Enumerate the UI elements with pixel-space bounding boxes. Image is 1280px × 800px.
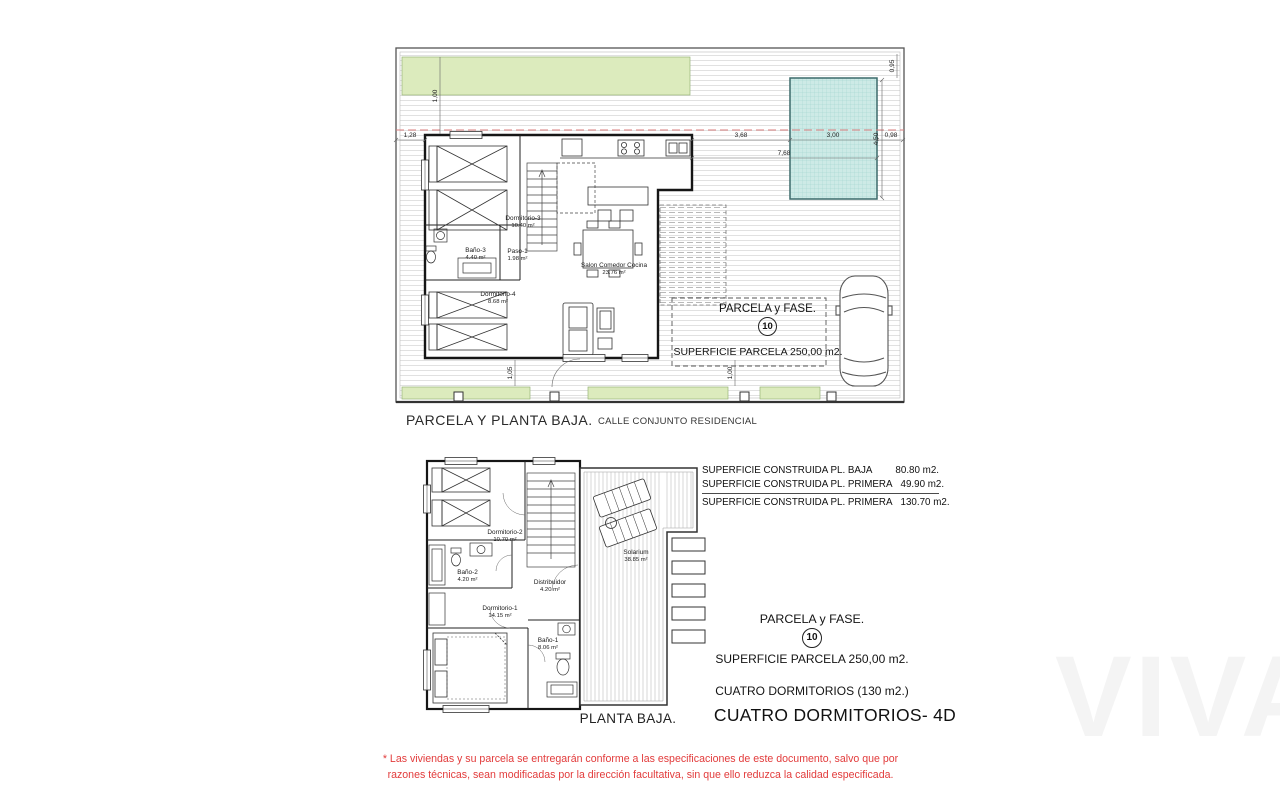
- svg-text:7,68: 7,68: [778, 150, 791, 157]
- disclaimer-text: * Las viviendas y su parcela se entregar…: [363, 751, 918, 784]
- svg-text:1,00: 1,00: [432, 89, 439, 102]
- parcel-phase-title: PARCELA y FASE.: [695, 303, 840, 315]
- svg-text:0,98: 0,98: [885, 132, 898, 139]
- svg-text:3,68: 3,68: [735, 132, 748, 139]
- parcel-area-text-top: SUPERFICIE PARCELA 250,00 m2.: [668, 343, 848, 358]
- garden-strip-bottom: [588, 387, 728, 399]
- room-label-dormitorio-4: Dormitorio-48.68 m²: [462, 291, 534, 306]
- room-label-dormitorio-3: Dormitorio-310.40 m²: [488, 215, 558, 230]
- svg-text:4,50: 4,50: [873, 132, 880, 145]
- svg-text:1,05: 1,05: [507, 366, 514, 379]
- pergola-louvers: [672, 538, 705, 643]
- parcel-number-badge: 10: [802, 628, 822, 648]
- floorplan-sheet: 1,28 3,68 3,00 0,98 7,68 4,50 0,95 1,00 …: [0, 0, 1280, 800]
- built-area-row: SUPERFICIE CONSTRUIDA PL. BAJA80.80 m2.: [702, 463, 939, 477]
- room-label-dormitorio-1: Dormitorio-114.15 m²: [465, 605, 535, 620]
- room-label-distribuidor: Distribuidor4.20 m²: [520, 579, 580, 594]
- built-areas-table: SUPERFICIE CONSTRUIDA PL. BAJA80.80 m2. …: [702, 463, 939, 510]
- svg-text:0,95: 0,95: [889, 59, 896, 72]
- parcel-area-text: SUPERFICIE PARCELA 250,00 m2.: [707, 652, 917, 666]
- floor-plan-caption: PLANTA BAJA.: [573, 711, 683, 726]
- covered-terrace: [660, 205, 726, 305]
- model-name: CUATRO DORMITORIOS- 4D: [690, 705, 980, 726]
- room-label-paso-1: Paso-11.98 m²: [495, 248, 540, 263]
- svg-text:1,28: 1,28: [404, 132, 417, 139]
- garden-strip-bottom: [402, 387, 530, 399]
- parcel-phase-block-bottom: PARCELA y FASE. 10 SUPERFICIE PARCELA 25…: [707, 612, 917, 666]
- room-label-solarium: Solarium38.85 m²: [610, 549, 662, 564]
- bedrooms-summary: CUATRO DORMITORIOS (130 m2.): [707, 684, 917, 698]
- room-label-salon: Salon Comedor Cocina23.76 m²: [560, 262, 668, 277]
- room-label-bano-2: Baño-24.20 m²: [440, 569, 495, 584]
- parcel-number-badge: 10: [758, 317, 777, 336]
- parcel-phase-block-top: PARCELA y FASE. 10: [695, 303, 840, 338]
- site-plan-caption: PARCELA Y PLANTA BAJA.: [406, 412, 593, 428]
- built-area-row: SUPERFICIE CONSTRUIDA PL. PRIMERA130.70 …: [702, 494, 939, 510]
- street-caption: CALLE CONJUNTO RESIDENCIAL: [598, 416, 757, 427]
- garden-strip-top: [402, 57, 690, 95]
- parcel-phase-title: PARCELA y FASE.: [707, 612, 917, 626]
- svg-text:1,00: 1,00: [727, 366, 734, 379]
- built-area-row: SUPERFICIE CONSTRUIDA PL. PRIMERA49.90 m…: [702, 477, 939, 494]
- car-icon: [836, 276, 892, 386]
- garden-strip-bottom: [760, 387, 820, 399]
- kitchen: [560, 139, 692, 158]
- room-label-bano-1: Baño-18.06 m²: [522, 637, 574, 652]
- svg-text:3,00: 3,00: [827, 132, 840, 139]
- room-label-dormitorio-2: Dormitorio-210.70 m²: [470, 529, 540, 544]
- watermark: VIVA: [1055, 640, 1280, 755]
